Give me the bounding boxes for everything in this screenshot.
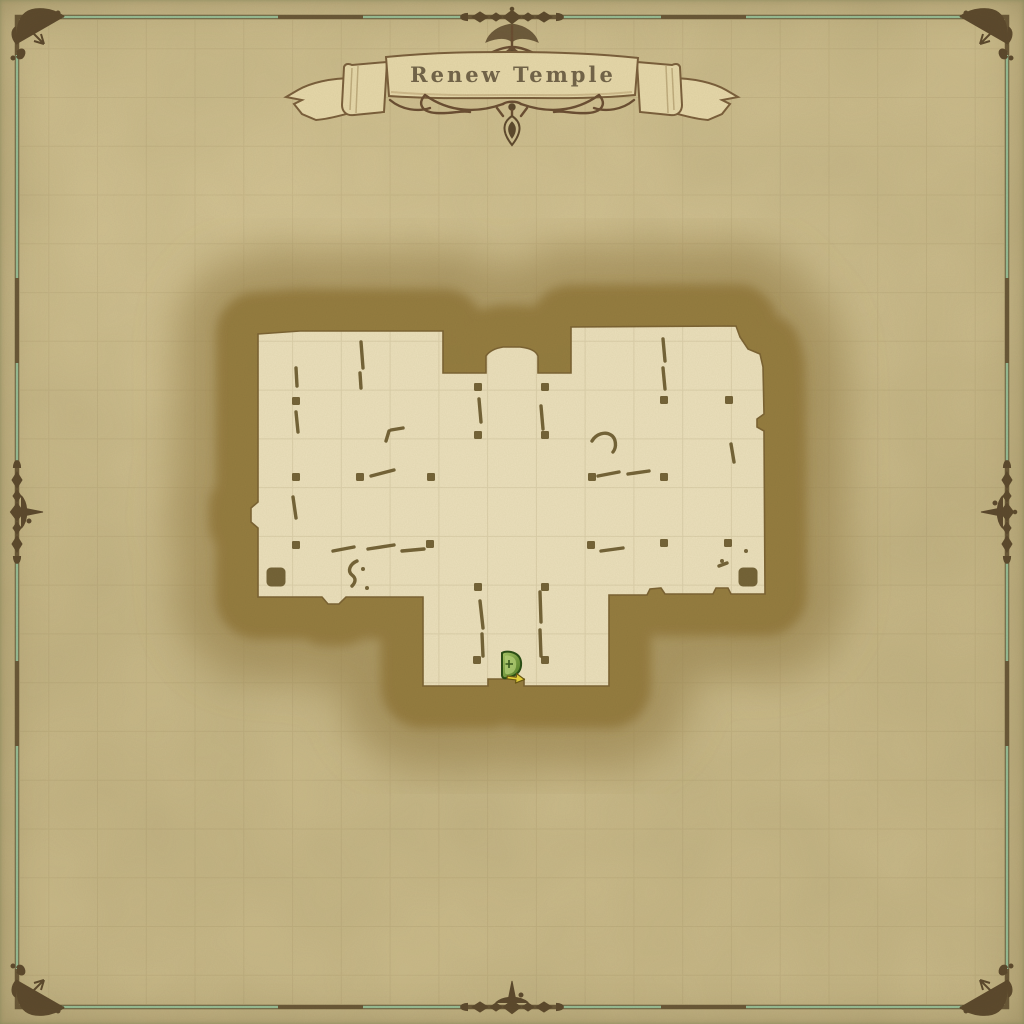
- paper-grain-overlay: [0, 0, 1024, 1024]
- map-viewport[interactable]: Renew Temple: [0, 0, 1024, 1024]
- map-canvas[interactable]: Renew Temple: [0, 0, 1024, 1024]
